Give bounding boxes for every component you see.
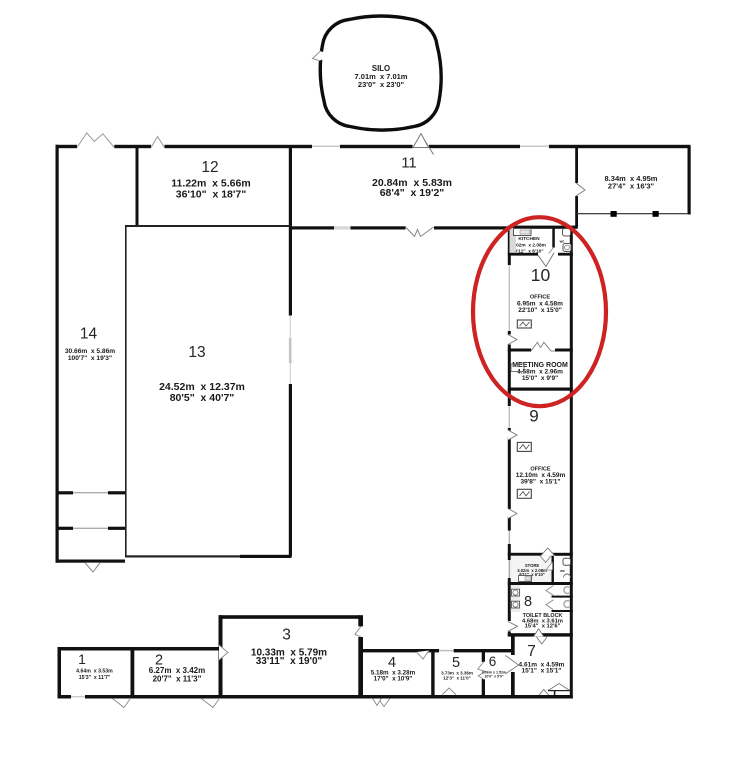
- svg-text:12'3" x 11'0": 12'3" x 11'0": [443, 675, 470, 680]
- svg-text:15'4" x 12'6": 15'4" x 12'6": [525, 624, 561, 630]
- svg-text:80'5" x 40'7": 80'5" x 40'7": [170, 392, 235, 404]
- svg-text:27'4" x 16'3": 27'4" x 16'3": [608, 181, 655, 190]
- svg-text:10: 10: [531, 265, 551, 285]
- svg-text:7: 7: [527, 643, 536, 660]
- svg-text:4.64m x 3.53m: 4.64m x 3.53m: [76, 669, 113, 675]
- svg-text:3.02m x 2.08m: 3.02m x 2.08m: [512, 243, 546, 249]
- svg-text:5: 5: [452, 655, 460, 671]
- svg-text:36'10" x 18'7": 36'10" x 18'7": [176, 189, 246, 201]
- svg-text:10'0" x 5'0": 10'0" x 5'0": [484, 675, 503, 679]
- svg-text:68'4" x 19'2": 68'4" x 19'2": [380, 187, 445, 199]
- svg-text:1: 1: [78, 651, 86, 667]
- svg-text:17'0" x 10'9": 17'0" x 10'9": [374, 675, 413, 682]
- svg-text:15'0" x 9'9": 15'0" x 9'9": [522, 375, 558, 382]
- svg-text:12: 12: [201, 159, 218, 176]
- svg-text:wc: wc: [559, 569, 565, 573]
- svg-text:KITCHEN: KITCHEN: [518, 236, 540, 242]
- svg-text:33'11" x 19'0": 33'11" x 19'0": [256, 656, 323, 667]
- svg-text:15'3" x 11'7": 15'3" x 11'7": [79, 675, 111, 681]
- svg-text:39'8" x 15'1": 39'8" x 15'1": [521, 478, 561, 485]
- svg-text:8: 8: [524, 594, 532, 610]
- svg-text:13: 13: [188, 344, 205, 361]
- svg-text:15'1" x 15'1": 15'1" x 15'1": [522, 668, 562, 675]
- svg-text:22'10" x 15'0": 22'10" x 15'0": [518, 307, 562, 314]
- svg-text:23'0" x 23'0": 23'0" x 23'0": [358, 80, 405, 89]
- svg-text:6: 6: [489, 654, 497, 669]
- svg-text:11: 11: [401, 155, 417, 172]
- svg-text:14: 14: [80, 326, 98, 343]
- svg-text:wc: wc: [559, 240, 565, 244]
- svg-text:3: 3: [282, 627, 291, 644]
- svg-text:20'7" x 11'3": 20'7" x 11'3": [153, 674, 202, 683]
- svg-text:100'7" x 19'3": 100'7" x 19'3": [68, 355, 112, 362]
- svg-text:9: 9: [529, 407, 538, 426]
